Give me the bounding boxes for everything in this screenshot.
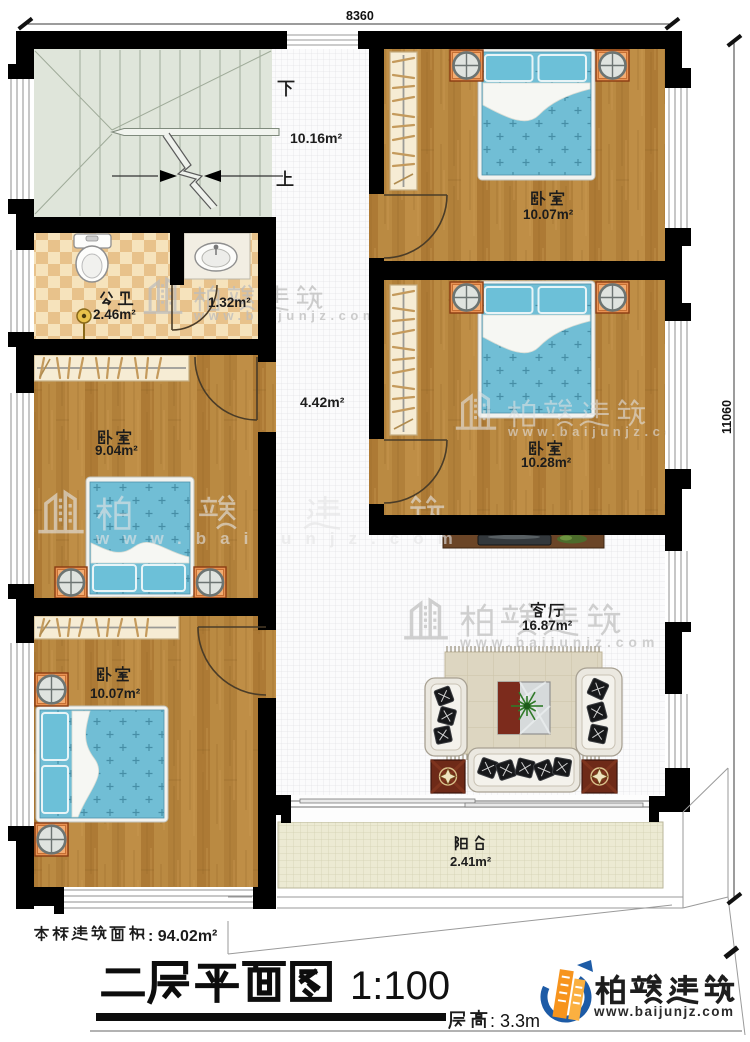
svg-text:16.87m²: 16.87m² [522, 618, 573, 633]
svg-text:www.baijunjz.com: www.baijunjz.com [593, 1004, 735, 1019]
svg-text:: 3.3m: : 3.3m [490, 1011, 540, 1031]
svg-text:www.baijunjz.com: www.baijunjz.com [459, 634, 659, 650]
svg-text:www.baijunjz.com: www.baijunjz.com [193, 308, 379, 323]
svg-text:11060: 11060 [720, 400, 734, 434]
svg-text:9.04m²: 9.04m² [95, 443, 138, 458]
svg-text:2.46m²: 2.46m² [93, 307, 136, 322]
svg-text:10.07m²: 10.07m² [523, 207, 574, 222]
svg-text:2.41m²: 2.41m² [450, 854, 492, 869]
svg-text:8360: 8360 [346, 9, 374, 23]
svg-text:1:100: 1:100 [350, 964, 450, 1008]
svg-text:4.42m²: 4.42m² [300, 394, 345, 410]
svg-text:1.32m²: 1.32m² [208, 295, 251, 310]
svg-text:10.16m²: 10.16m² [290, 130, 342, 146]
svg-text:10.07m²: 10.07m² [90, 686, 141, 701]
svg-text:: 94.02m²: : 94.02m² [148, 928, 217, 945]
svg-text:www.baijunjz.com: www.baijunjz.com [507, 424, 693, 439]
svg-text:10.28m²: 10.28m² [521, 455, 572, 470]
